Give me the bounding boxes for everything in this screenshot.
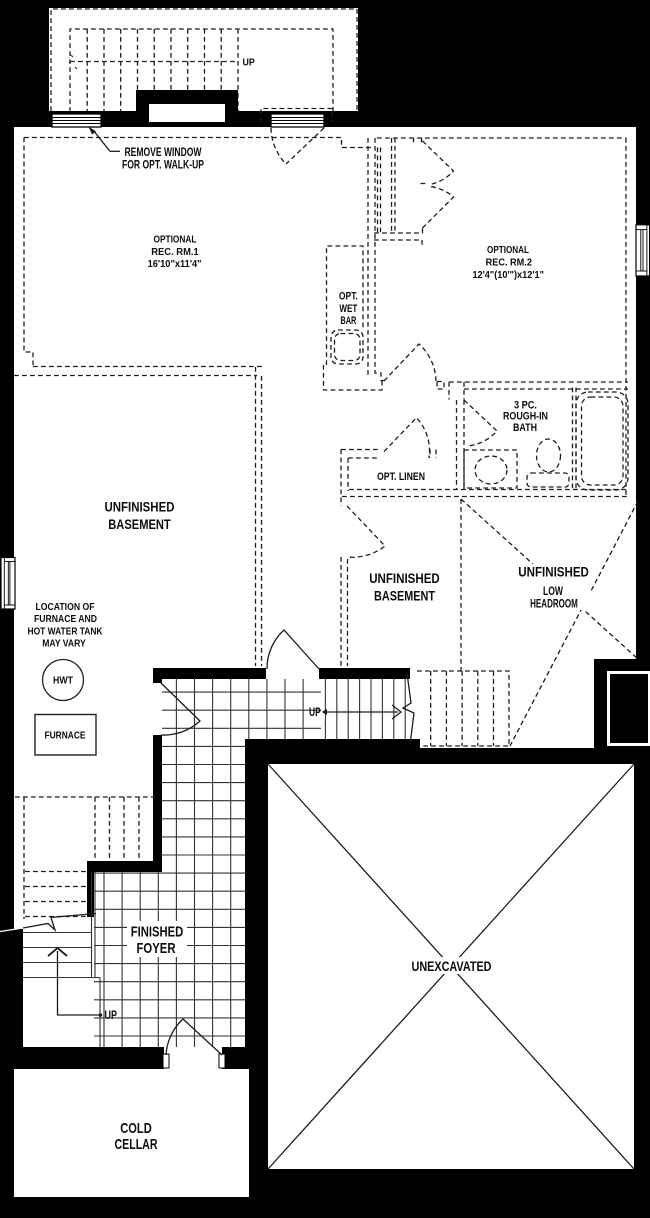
svg-text:3 PC.: 3 PC. (514, 400, 537, 412)
svg-text:UNFINISHED: UNFINISHED (518, 565, 589, 580)
svg-text:ROUGH-IN: ROUGH-IN (503, 411, 548, 423)
svg-text:BATH: BATH (513, 422, 537, 434)
svg-text:REC. RM.2: REC. RM.2 (486, 257, 533, 268)
svg-text:LOCATION OF: LOCATION OF (36, 602, 95, 613)
svg-text:OPT.: OPT. (339, 291, 358, 303)
svg-text:12'4"(10'")x12'1": 12'4"(10'")x12'1" (472, 270, 544, 281)
svg-text:UNFINISHED: UNFINISHED (369, 571, 440, 586)
svg-text:FOYER: FOYER (137, 940, 176, 957)
svg-text:REC. RM.1: REC. RM.1 (151, 247, 199, 258)
svg-text:UNFINISHED: UNFINISHED (105, 500, 175, 515)
svg-text:CELLAR: CELLAR (115, 1136, 158, 1153)
svg-text:HWT: HWT (53, 675, 73, 687)
svg-text:16'10"x11'4": 16'10"x11'4" (148, 259, 202, 270)
svg-text:MAY VARY: MAY VARY (42, 639, 86, 650)
svg-text:UP: UP (243, 56, 255, 68)
svg-text:UP: UP (105, 1008, 118, 1022)
svg-text:LOW: LOW (543, 586, 563, 598)
svg-text:BAR: BAR (340, 315, 356, 327)
svg-text:UNEXCAVATED: UNEXCAVATED (412, 959, 492, 974)
svg-text:UP: UP (309, 705, 321, 719)
svg-text:OPTIONAL: OPTIONAL (487, 245, 529, 256)
svg-text:OPTIONAL: OPTIONAL (154, 235, 197, 246)
svg-text:HEADROOM: HEADROOM (530, 599, 578, 611)
svg-text:FURNACE: FURNACE (45, 730, 86, 742)
svg-text:WET: WET (339, 303, 357, 315)
svg-text:FINISHED: FINISHED (131, 924, 184, 941)
svg-text:OPT. LINEN: OPT. LINEN (377, 471, 425, 483)
svg-text:COLD: COLD (120, 1120, 152, 1137)
svg-text:HOT WATER TANK: HOT WATER TANK (28, 627, 104, 638)
svg-text:FURNACE AND: FURNACE AND (34, 614, 97, 625)
svg-text:BASEMENT: BASEMENT (108, 517, 171, 532)
svg-text:FOR OPT. WALK-UP: FOR OPT. WALK-UP (122, 157, 204, 171)
svg-text:BASEMENT: BASEMENT (374, 588, 436, 603)
